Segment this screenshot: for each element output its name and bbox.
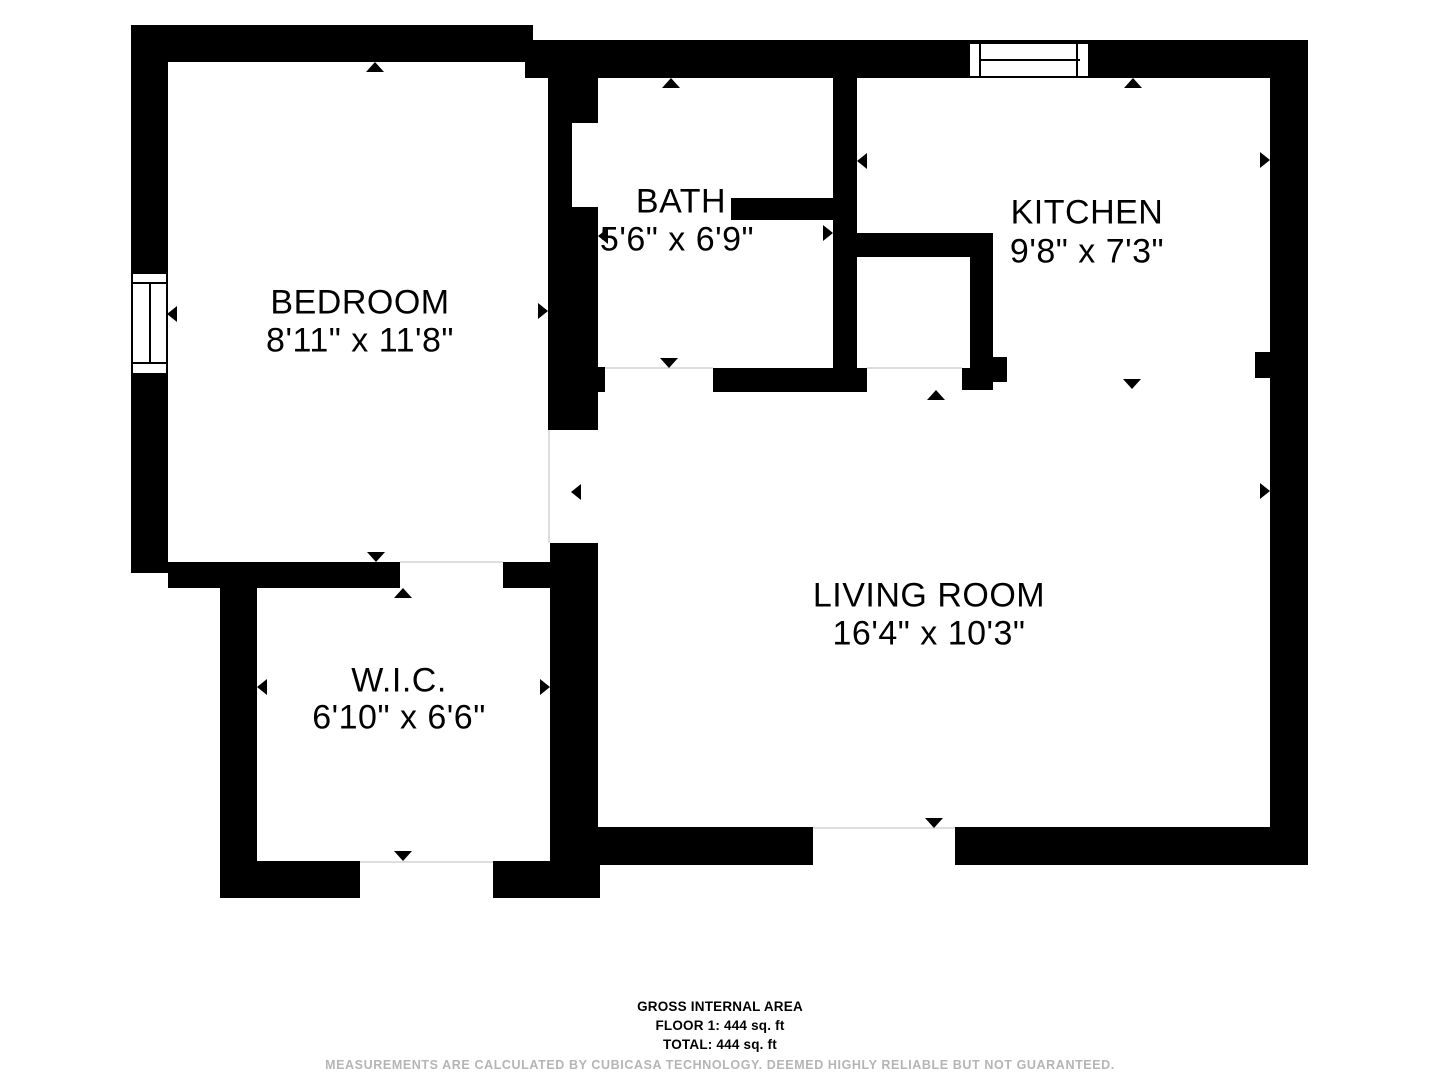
wall-kitchen-stub [1255,352,1270,378]
wall-closet-top [857,233,993,257]
window-line [149,282,151,364]
kitchen-window-icon [968,42,1090,78]
dim-arrow-wic-left [257,679,267,695]
dim-arrow-wic-right [540,679,550,695]
wall-bath-door-jamb [593,367,605,392]
room-label-living-room: LIVING ROOM [813,577,1045,616]
dim-arrow-living-right [1260,483,1270,499]
wall-closet-right [970,257,993,390]
wall-bedroom-top [131,25,533,62]
room-label-bath: BATH [636,183,726,222]
dim-arrow-living-down [925,818,943,828]
wall-closet-stub [993,357,1007,382]
wall-bedroom-bath [548,40,598,430]
wall-bedroom-bottom-left [168,562,400,588]
bath-wall-niche [572,123,598,207]
window-line [979,59,1080,61]
wall-bath-stub [731,198,835,220]
room-dims-kitchen: 9'8" x 7'3" [1010,233,1164,272]
dim-arrow-kitchen-left [857,153,867,169]
dim-arrow-bedroom-right [538,303,548,319]
dim-arrow-bedroom-down [367,552,385,562]
dim-arrow-kitchen-down [1123,379,1141,389]
dim-arrow-kitchen-up [1124,78,1142,88]
wall-wic-bottom-right [493,861,600,898]
door-line-bedroom-wic [400,561,503,563]
room-label-wic: W.I.C. [351,662,447,701]
room-label-kitchen: KITCHEN [1011,194,1164,233]
room-label-bedroom: BEDROOM [270,284,449,323]
dim-arrow-living-up [927,390,945,400]
room-dims-living-room: 16'4" x 10'3" [833,615,1026,654]
dim-arrow-bath-right [823,225,833,241]
door-line-wic-entry [360,861,493,863]
room-dims-bath: 5'6" x 6'9" [600,221,754,260]
dim-arrow-bath-down [660,358,678,368]
wall-wic-left [220,588,257,898]
dim-arrow-kitchen-right [1260,152,1270,168]
dim-arrow-bedroom-left [167,306,177,322]
dim-arrow-wic-up [394,588,412,598]
open-line-closet [867,367,962,369]
total-area-line: TOTAL: 444 sq. ft [0,1035,1440,1054]
room-dims-wic: 6'10" x 6'6" [312,699,486,738]
wall-bath-kitchen [833,40,857,392]
gross-internal-area-title: GROSS INTERNAL AREA [0,997,1440,1016]
wall-bath-bottom [713,368,867,392]
footer: GROSS INTERNAL AREA FLOOR 1: 444 sq. ft … [0,997,1440,1074]
room-dims-bedroom: 8'11" x 11'8" [266,322,454,361]
wall-living-left-lower [550,543,598,898]
floor-area-line: FLOOR 1: 444 sq. ft [0,1016,1440,1035]
measurement-disclaimer: MEASUREMENTS ARE CALCULATED BY CUBICASA … [0,1057,1440,1074]
wall-living-bottom-left [598,827,813,865]
bedroom-window-icon [131,272,168,375]
dim-arrow-wic-down [394,851,412,861]
wall-main-top [525,40,1308,78]
floor-plan: BEDROOM 8'11" x 11'8" BATH 5'6" x 6'9" K… [0,0,1440,1080]
wall-wic-bottom-left [220,861,360,898]
dim-arrow-living-left [571,484,581,500]
door-line-bath [605,367,713,369]
door-line-bedroom-living [548,430,550,543]
wall-living-bottom-right [955,827,1308,865]
dim-arrow-bedroom-up [366,62,384,72]
wall-bedroom-bottom-right [503,562,550,588]
wall-closet-foot [962,368,970,390]
wall-right-outer [1270,40,1308,865]
dim-arrow-bath-up [662,78,680,88]
